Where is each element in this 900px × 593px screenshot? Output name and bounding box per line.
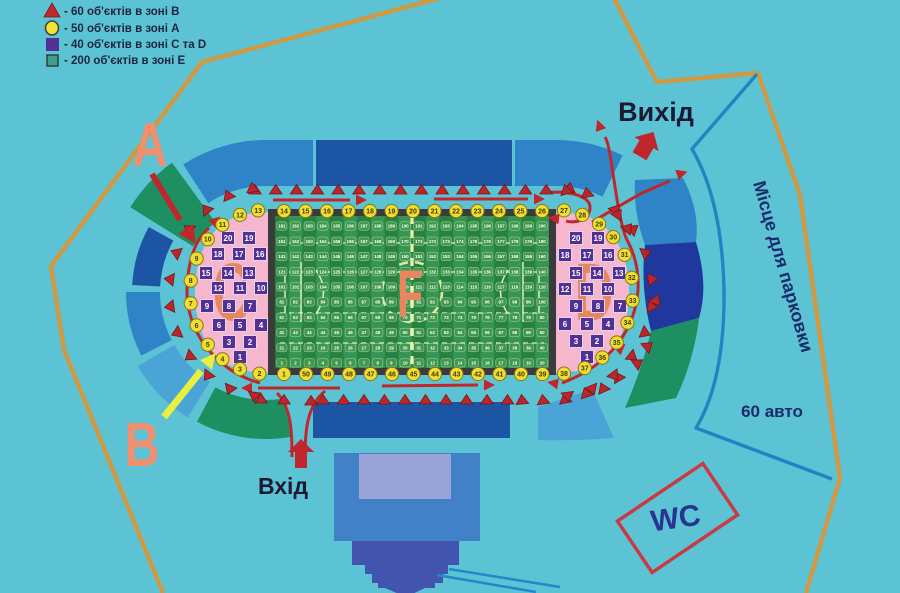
svg-text:34: 34 [624, 320, 632, 327]
svg-text:A: A [133, 110, 168, 179]
svg-text:98: 98 [512, 300, 517, 305]
svg-text:2: 2 [595, 337, 600, 346]
svg-text:165: 165 [333, 239, 341, 244]
svg-text:69: 69 [389, 315, 394, 320]
svg-text:WC: WC [649, 499, 703, 539]
svg-text:26: 26 [538, 208, 546, 215]
svg-text:15: 15 [202, 269, 211, 278]
svg-text:29: 29 [389, 345, 394, 350]
svg-text:56: 56 [485, 330, 490, 335]
svg-text:140: 140 [538, 269, 546, 274]
svg-text:102: 102 [292, 285, 300, 290]
svg-text:62: 62 [293, 315, 298, 320]
svg-text:64: 64 [320, 315, 325, 320]
svg-text:167: 167 [360, 239, 368, 244]
svg-text:- 50 об'єктів в зоні A: - 50 об'єктів в зоні A [64, 23, 179, 35]
svg-text:46: 46 [348, 330, 353, 335]
svg-text:112: 112 [429, 285, 437, 290]
svg-text:155: 155 [470, 254, 478, 259]
svg-text:4: 4 [606, 320, 611, 329]
svg-text:48: 48 [375, 330, 380, 335]
svg-text:128: 128 [374, 269, 382, 274]
svg-text:15: 15 [572, 269, 581, 278]
svg-text:22: 22 [293, 345, 298, 350]
svg-text:166: 166 [347, 239, 355, 244]
svg-text:3: 3 [574, 337, 579, 346]
svg-text:3: 3 [238, 367, 242, 374]
svg-text:32: 32 [430, 345, 435, 350]
svg-text:164: 164 [319, 239, 327, 244]
svg-text:35: 35 [613, 340, 621, 347]
svg-text:19: 19 [594, 234, 603, 243]
svg-text:42: 42 [293, 330, 298, 335]
svg-text:176: 176 [484, 239, 492, 244]
svg-text:184: 184 [319, 224, 327, 229]
svg-text:191: 191 [415, 224, 423, 229]
svg-text:94: 94 [457, 300, 462, 305]
svg-text:5: 5 [238, 321, 243, 330]
svg-text:Вхід: Вхід [258, 473, 308, 499]
svg-text:54: 54 [457, 330, 462, 335]
svg-text:66: 66 [348, 315, 353, 320]
svg-text:74: 74 [457, 315, 462, 320]
svg-text:B: B [125, 410, 160, 479]
svg-text:194: 194 [456, 224, 464, 229]
svg-text:25: 25 [517, 208, 525, 215]
svg-text:195: 195 [470, 224, 478, 229]
svg-text:81: 81 [279, 300, 284, 305]
svg-text:42: 42 [474, 371, 482, 378]
svg-text:12: 12 [561, 285, 570, 294]
svg-text:101: 101 [278, 285, 286, 290]
svg-text:78: 78 [512, 315, 517, 320]
svg-text:63: 63 [307, 315, 312, 320]
svg-text:21: 21 [279, 345, 284, 350]
svg-text:156: 156 [484, 254, 492, 259]
svg-text:96: 96 [485, 300, 490, 305]
svg-text:4: 4 [259, 321, 264, 330]
svg-text:3: 3 [227, 338, 232, 347]
svg-text:9: 9 [195, 256, 199, 263]
svg-text:143: 143 [306, 254, 314, 259]
svg-text:25: 25 [334, 345, 339, 350]
svg-text:132: 132 [429, 269, 437, 274]
svg-text:47: 47 [367, 371, 375, 378]
svg-text:162: 162 [292, 239, 300, 244]
svg-text:38: 38 [512, 345, 517, 350]
svg-text:193: 193 [443, 224, 451, 229]
svg-text:161: 161 [278, 239, 286, 244]
svg-text:35: 35 [471, 345, 476, 350]
svg-text:33: 33 [444, 345, 449, 350]
svg-text:49: 49 [389, 330, 394, 335]
svg-text:2: 2 [248, 338, 253, 347]
svg-text:169: 169 [388, 239, 396, 244]
svg-text:107: 107 [360, 285, 368, 290]
svg-text:137: 137 [497, 269, 505, 274]
svg-text:14: 14 [224, 269, 233, 278]
svg-text:5: 5 [585, 320, 590, 329]
svg-text:122: 122 [292, 269, 300, 274]
svg-text:8: 8 [227, 302, 232, 311]
svg-text:190: 190 [401, 224, 409, 229]
svg-text:23: 23 [474, 208, 482, 215]
svg-text:5: 5 [206, 342, 210, 349]
svg-text:31: 31 [621, 252, 629, 259]
svg-text:147: 147 [360, 254, 368, 259]
svg-text:89: 89 [389, 300, 394, 305]
svg-text:12: 12 [430, 361, 435, 366]
svg-text:33: 33 [629, 298, 637, 305]
svg-text:114: 114 [456, 285, 464, 290]
svg-text:- 200 об'єктів в зоні E: - 200 об'єктів в зоні E [64, 55, 186, 67]
svg-text:187: 187 [360, 224, 368, 229]
svg-text:52: 52 [430, 330, 435, 335]
svg-text:183: 183 [306, 224, 314, 229]
svg-text:199: 199 [525, 224, 533, 229]
svg-text:30: 30 [609, 235, 617, 242]
svg-text:173: 173 [443, 239, 451, 244]
svg-text:119: 119 [525, 285, 533, 290]
svg-text:43: 43 [307, 330, 312, 335]
svg-text:180: 180 [538, 239, 546, 244]
svg-text:9: 9 [205, 302, 210, 311]
svg-text:41: 41 [279, 330, 284, 335]
svg-text:24: 24 [495, 208, 503, 215]
svg-text:60 авто: 60 авто [741, 402, 803, 421]
svg-text:41: 41 [496, 371, 504, 378]
svg-text:8: 8 [596, 302, 601, 311]
svg-text:11: 11 [219, 222, 227, 229]
svg-text:189: 189 [388, 224, 396, 229]
svg-text:40: 40 [540, 345, 545, 350]
svg-text:1: 1 [585, 353, 590, 362]
svg-text:109: 109 [388, 285, 396, 290]
svg-text:32: 32 [628, 275, 636, 282]
svg-text:19: 19 [388, 208, 396, 215]
svg-text:60: 60 [540, 330, 545, 335]
svg-text:6: 6 [195, 323, 199, 330]
svg-text:75: 75 [471, 315, 476, 320]
svg-text:86: 86 [348, 300, 353, 305]
svg-text:177: 177 [497, 239, 505, 244]
svg-text:1: 1 [238, 353, 243, 362]
svg-text:178: 178 [511, 239, 519, 244]
svg-text:149: 149 [388, 254, 396, 259]
svg-text:84: 84 [320, 300, 325, 305]
svg-text:16: 16 [323, 208, 331, 215]
svg-text:93: 93 [444, 300, 449, 305]
svg-text:53: 53 [444, 330, 449, 335]
svg-text:15: 15 [471, 361, 476, 366]
svg-text:83: 83 [307, 300, 312, 305]
svg-text:19: 19 [245, 234, 254, 243]
svg-text:157: 157 [497, 254, 505, 259]
svg-text:27: 27 [560, 208, 568, 215]
svg-text:14: 14 [457, 361, 462, 366]
svg-text:136: 136 [484, 269, 492, 274]
svg-text:48: 48 [345, 371, 353, 378]
svg-text:8: 8 [189, 278, 193, 285]
svg-text:76: 76 [485, 315, 490, 320]
svg-text:1: 1 [282, 371, 286, 378]
svg-text:F: F [397, 256, 423, 332]
svg-text:7: 7 [618, 302, 623, 311]
svg-text:160: 160 [538, 254, 546, 259]
svg-text:152: 152 [429, 254, 437, 259]
svg-text:182: 182 [292, 224, 300, 229]
svg-text:29: 29 [595, 221, 603, 228]
svg-text:Вихід: Вихід [618, 97, 694, 127]
svg-text:58: 58 [512, 330, 517, 335]
svg-text:105: 105 [333, 285, 341, 290]
svg-text:141: 141 [278, 254, 286, 259]
svg-text:104: 104 [319, 285, 327, 290]
svg-text:57: 57 [499, 330, 504, 335]
svg-text:108: 108 [374, 285, 382, 290]
svg-text:43: 43 [453, 371, 461, 378]
svg-text:17: 17 [499, 361, 504, 366]
svg-text:192: 192 [429, 224, 437, 229]
svg-text:38: 38 [560, 371, 568, 378]
svg-text:34: 34 [457, 345, 462, 350]
svg-text:129: 129 [388, 269, 396, 274]
svg-text:10: 10 [604, 285, 613, 294]
svg-text:44: 44 [431, 371, 439, 378]
svg-text:14: 14 [593, 269, 602, 278]
svg-text:179: 179 [525, 239, 533, 244]
svg-text:12: 12 [214, 284, 223, 293]
svg-text:6: 6 [217, 321, 222, 330]
svg-text:20: 20 [224, 234, 233, 243]
svg-text:16: 16 [485, 361, 490, 366]
svg-text:36: 36 [485, 345, 490, 350]
svg-text:72: 72 [430, 315, 435, 320]
svg-text:154: 154 [456, 254, 464, 259]
svg-text:18: 18 [366, 208, 374, 215]
svg-text:7: 7 [189, 301, 193, 308]
svg-text:68: 68 [375, 315, 380, 320]
svg-text:175: 175 [470, 239, 478, 244]
svg-text:135: 135 [470, 269, 478, 274]
svg-text:21: 21 [431, 208, 439, 215]
svg-text:153: 153 [443, 254, 451, 259]
svg-text:171: 171 [415, 239, 423, 244]
svg-text:- 40 об'єктів в зоні C та D: - 40 об'єктів в зоні C та D [64, 39, 206, 51]
svg-text:172: 172 [429, 239, 437, 244]
svg-text:158: 158 [511, 254, 519, 259]
svg-text:73: 73 [444, 315, 449, 320]
svg-text:18: 18 [214, 250, 223, 259]
svg-text:115: 115 [470, 285, 478, 290]
svg-text:103: 103 [306, 285, 314, 290]
svg-text:39: 39 [526, 345, 531, 350]
svg-text:20: 20 [572, 234, 581, 243]
svg-text:188: 188 [374, 224, 382, 229]
svg-text:174: 174 [456, 239, 464, 244]
svg-text:124: 124 [319, 269, 327, 274]
svg-text:97: 97 [499, 300, 504, 305]
svg-text:30: 30 [403, 345, 408, 350]
svg-text:20: 20 [409, 208, 417, 215]
svg-text:92: 92 [430, 300, 435, 305]
svg-text:126: 126 [347, 269, 355, 274]
svg-text:23: 23 [307, 345, 312, 350]
svg-text:16: 16 [256, 250, 265, 259]
svg-text:123: 123 [306, 269, 314, 274]
svg-text:196: 196 [484, 224, 492, 229]
svg-text:79: 79 [526, 315, 531, 320]
svg-text:138: 138 [511, 269, 519, 274]
svg-text:146: 146 [347, 254, 355, 259]
svg-text:11: 11 [583, 285, 592, 294]
svg-text:27: 27 [362, 345, 367, 350]
svg-text:82: 82 [293, 300, 298, 305]
svg-text:117: 117 [497, 285, 505, 290]
svg-text:18: 18 [561, 251, 570, 260]
svg-text:80: 80 [540, 315, 545, 320]
svg-text:7: 7 [248, 302, 253, 311]
svg-text:99: 99 [526, 300, 531, 305]
svg-text:134: 134 [456, 269, 464, 274]
svg-text:12: 12 [236, 212, 244, 219]
svg-text:14: 14 [280, 208, 288, 215]
svg-text:17: 17 [583, 251, 592, 260]
svg-text:100: 100 [538, 300, 546, 305]
svg-text:39: 39 [539, 371, 547, 378]
svg-text:159: 159 [525, 254, 533, 259]
svg-text:11: 11 [236, 284, 245, 293]
svg-text:168: 168 [374, 239, 382, 244]
svg-text:181: 181 [278, 224, 286, 229]
svg-text:45: 45 [410, 371, 418, 378]
svg-text:116: 116 [484, 285, 492, 290]
svg-text:106: 106 [347, 285, 355, 290]
svg-text:148: 148 [374, 254, 382, 259]
svg-text:44: 44 [320, 330, 325, 335]
svg-text:120: 120 [538, 285, 546, 290]
svg-text:20: 20 [540, 361, 545, 366]
svg-text:13: 13 [254, 208, 262, 215]
svg-text:31: 31 [416, 345, 421, 350]
svg-text:10: 10 [403, 361, 408, 366]
svg-text:26: 26 [348, 345, 353, 350]
svg-text:121: 121 [278, 269, 286, 274]
svg-text:50: 50 [302, 371, 310, 378]
svg-text:16: 16 [604, 251, 613, 260]
svg-text:24: 24 [320, 345, 325, 350]
svg-text:40: 40 [517, 371, 525, 378]
svg-text:36: 36 [598, 355, 606, 362]
svg-text:37: 37 [499, 345, 504, 350]
svg-text:17: 17 [235, 250, 244, 259]
svg-text:49: 49 [324, 371, 332, 378]
svg-text:113: 113 [443, 285, 451, 290]
svg-text:77: 77 [499, 315, 504, 320]
svg-text:145: 145 [333, 254, 341, 259]
svg-text:127: 127 [360, 269, 368, 274]
svg-text:46: 46 [388, 371, 396, 378]
svg-text:2: 2 [257, 371, 261, 378]
svg-text:22: 22 [452, 208, 460, 215]
svg-text:- 60 об'єктів в зоні B: - 60 об'єктів в зоні B [64, 6, 179, 18]
svg-text:61: 61 [279, 315, 284, 320]
svg-text:197: 197 [497, 224, 505, 229]
svg-text:133: 133 [443, 269, 451, 274]
svg-text:11: 11 [416, 361, 421, 366]
svg-text:139: 139 [525, 269, 533, 274]
svg-text:118: 118 [511, 285, 519, 290]
svg-text:55: 55 [471, 330, 476, 335]
svg-text:198: 198 [511, 224, 519, 229]
svg-text:85: 85 [334, 300, 339, 305]
svg-text:125: 125 [333, 269, 341, 274]
svg-text:59: 59 [526, 330, 531, 335]
svg-text:13: 13 [245, 269, 254, 278]
svg-text:45: 45 [334, 330, 339, 335]
svg-text:170: 170 [401, 239, 409, 244]
svg-text:87: 87 [362, 300, 367, 305]
svg-text:37: 37 [581, 365, 589, 372]
svg-text:18: 18 [512, 361, 517, 366]
svg-text:28: 28 [375, 345, 380, 350]
svg-text:19: 19 [526, 361, 531, 366]
svg-text:9: 9 [574, 302, 579, 311]
svg-text:10: 10 [257, 284, 266, 293]
svg-text:13: 13 [444, 361, 449, 366]
svg-text:10: 10 [204, 237, 212, 244]
svg-text:6: 6 [563, 320, 568, 329]
svg-text:185: 185 [333, 224, 341, 229]
svg-text:65: 65 [334, 315, 339, 320]
svg-text:17: 17 [345, 208, 353, 215]
svg-text:28: 28 [578, 212, 586, 219]
svg-text:67: 67 [362, 315, 367, 320]
svg-text:200: 200 [538, 224, 546, 229]
svg-text:144: 144 [319, 254, 327, 259]
svg-text:13: 13 [615, 269, 624, 278]
svg-text:142: 142 [292, 254, 300, 259]
svg-text:88: 88 [375, 300, 380, 305]
svg-text:163: 163 [306, 239, 314, 244]
svg-text:186: 186 [347, 224, 355, 229]
svg-text:4: 4 [220, 357, 224, 364]
svg-text:47: 47 [362, 330, 367, 335]
svg-text:95: 95 [471, 300, 476, 305]
svg-text:15: 15 [302, 208, 310, 215]
